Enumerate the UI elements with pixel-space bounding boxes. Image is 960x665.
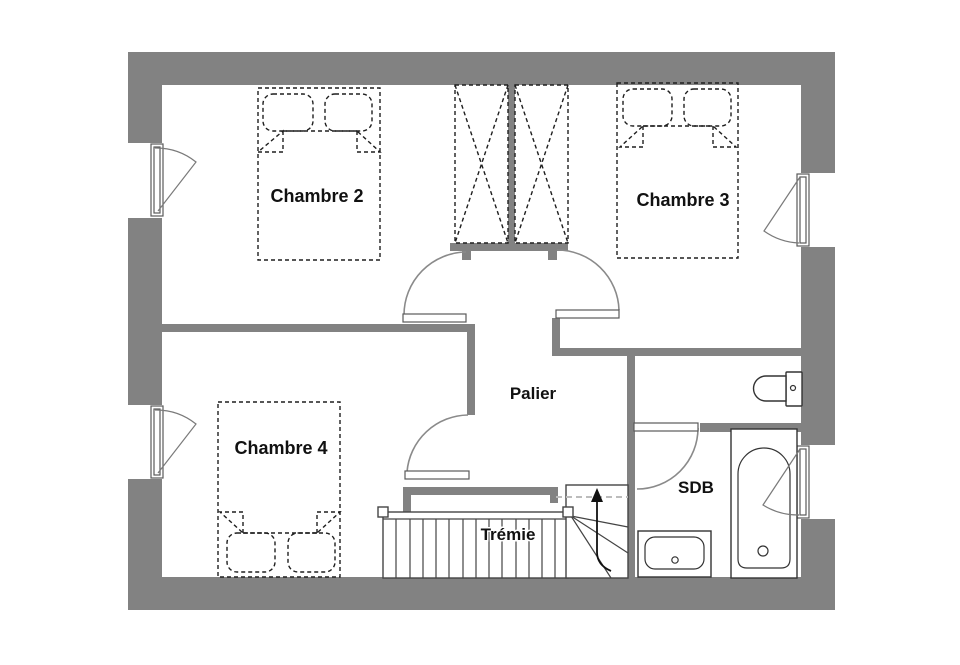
door-chambre-3 (556, 250, 619, 318)
door-chambre-2 (403, 252, 466, 322)
room-label-chambre-4: Chambre 4 (234, 438, 327, 458)
room-label-sdb: SDB (678, 478, 714, 497)
window-chambre-2 (128, 143, 196, 218)
window-chambre-4 (128, 405, 196, 479)
window-chambre-3 (764, 173, 835, 247)
newel-post (563, 507, 573, 517)
bed-chambre-3 (617, 83, 738, 258)
bed-chambre-2 (258, 88, 380, 260)
floor-plan-page: Chambre 2 Chambre 3 Chambre 4 Palier SDB… (0, 0, 960, 665)
room-label-palier: Palier (510, 384, 557, 403)
toilet (754, 372, 802, 406)
room-label-chambre-2: Chambre 2 (270, 186, 363, 206)
room-label-chambre-3: Chambre 3 (636, 190, 729, 210)
washbasin (638, 531, 711, 577)
door-chambre-4 (405, 415, 469, 479)
floor-plan-drawing: Chambre 2 Chambre 3 Chambre 4 Palier SDB… (0, 0, 960, 665)
stairwell-label-tremie: Trémie (481, 525, 536, 544)
interior-walls (162, 85, 802, 578)
bed-chambre-4 (218, 402, 340, 577)
newel-post (378, 507, 388, 517)
